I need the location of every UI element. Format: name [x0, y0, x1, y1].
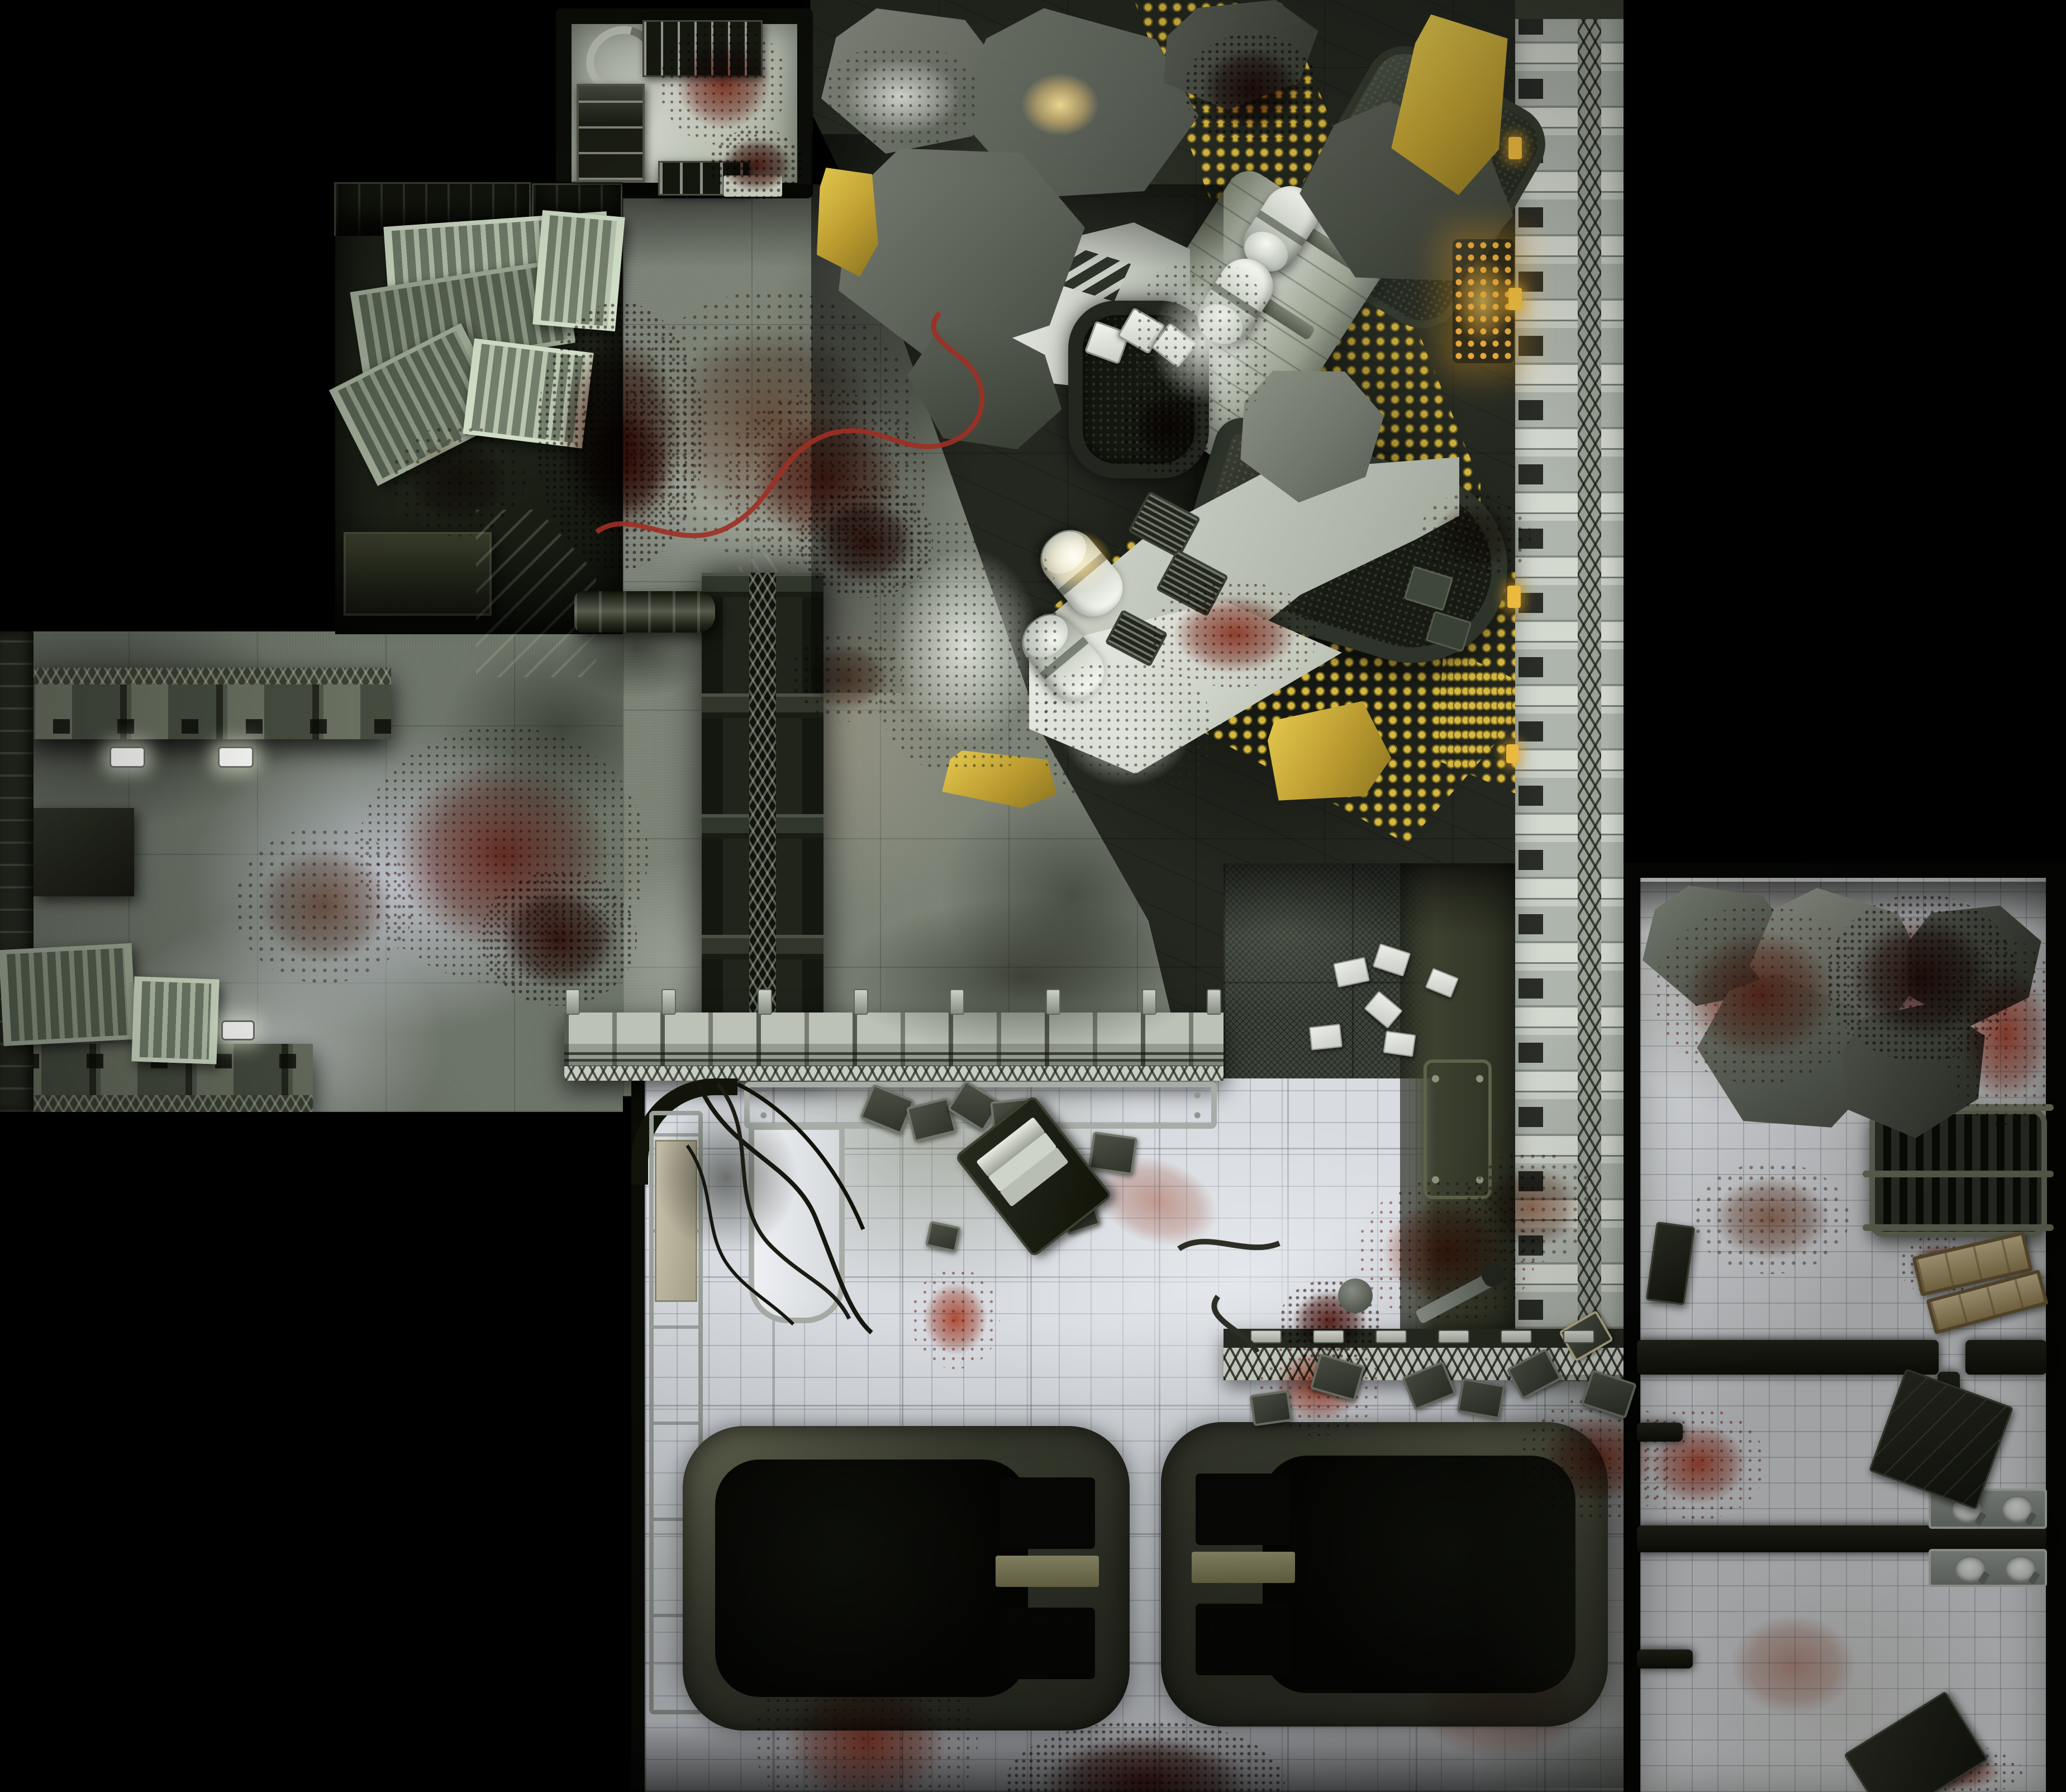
sink [2001, 1495, 2034, 1523]
shade-sh-o [782, 872, 1263, 1084]
blood-b-bright [1944, 939, 2066, 1129]
glowdots [1453, 239, 1514, 363]
light [110, 747, 145, 768]
desk [1645, 1221, 1695, 1305]
post [1207, 989, 1221, 1015]
tray [1402, 1361, 1456, 1410]
shade-sh-t [1224, 863, 1515, 936]
clamp [1501, 1330, 1532, 1343]
tray [1249, 1390, 1292, 1426]
tray [1506, 1348, 1562, 1400]
blood-b-dark [799, 486, 933, 598]
pipe [574, 591, 715, 633]
tray [1088, 1132, 1138, 1175]
tray [906, 1097, 956, 1143]
container [0, 943, 136, 1046]
blood-b-rust [791, 633, 902, 722]
post [661, 989, 676, 1015]
paper [1333, 957, 1370, 987]
blood-b-red [659, 22, 788, 145]
glow [1008, 63, 1112, 146]
post [565, 989, 580, 1015]
wallbar [1965, 1340, 2046, 1375]
slab [1257, 692, 1399, 819]
rubble [826, 47, 977, 145]
amber [1508, 137, 1522, 159]
light [221, 1020, 255, 1040]
wallbar [1637, 1650, 1693, 1669]
post [758, 989, 772, 1015]
tray [1456, 1378, 1506, 1420]
wallbar [1637, 1525, 2046, 1552]
clamp [1563, 1330, 1594, 1343]
clamp [1438, 1330, 1469, 1343]
amber [1506, 744, 1518, 763]
container-c-light [131, 976, 219, 1064]
blood-b-dark [1184, 34, 1318, 145]
paper [1383, 1030, 1416, 1057]
rubble [1042, 662, 1210, 802]
blood-b-bright [911, 1268, 1000, 1369]
post [950, 989, 964, 1015]
blood-b-dark [480, 872, 637, 1006]
wallbar [1637, 1340, 1939, 1375]
scene-objects [0, 0, 2066, 1792]
paper [1309, 1024, 1343, 1051]
shade-sh-o [631, 1077, 821, 1278]
machine-m-bench [577, 84, 645, 182]
sink [1954, 1556, 1987, 1582]
paper [1425, 968, 1459, 998]
tray [925, 1221, 961, 1253]
post [1142, 989, 1156, 1015]
blood-b-rust [1419, 492, 1531, 581]
blood-b-bright [754, 1648, 978, 1792]
sink [2005, 1556, 2037, 1582]
amber [1507, 586, 1521, 608]
blood-b-pink [1710, 1598, 1877, 1732]
blood-b-red [1151, 581, 1318, 687]
blood-b-rust [235, 827, 413, 983]
blood-b-dark [1006, 1721, 1285, 1792]
paper [1364, 991, 1403, 1029]
clamp [1250, 1330, 1282, 1343]
pad [1338, 1278, 1373, 1313]
blood-b-dark [1123, 380, 1212, 475]
wallbar [1637, 1423, 1683, 1442]
map-canvas[interactable] [0, 0, 2066, 1792]
blood-b-rust [1693, 1162, 1849, 1274]
blood-b-rust [391, 425, 525, 536]
amber [1508, 288, 1522, 310]
clamp [1375, 1330, 1407, 1343]
blood-b-dark [710, 129, 804, 201]
glow [1027, 520, 1125, 601]
blood-b-pink [1386, 1632, 1620, 1777]
blood-b-rust [1464, 1151, 1598, 1263]
slab [817, 168, 878, 277]
clamp [1313, 1330, 1344, 1343]
post [854, 989, 868, 1015]
paper [1373, 943, 1411, 977]
light [218, 747, 254, 768]
post [1046, 989, 1060, 1015]
